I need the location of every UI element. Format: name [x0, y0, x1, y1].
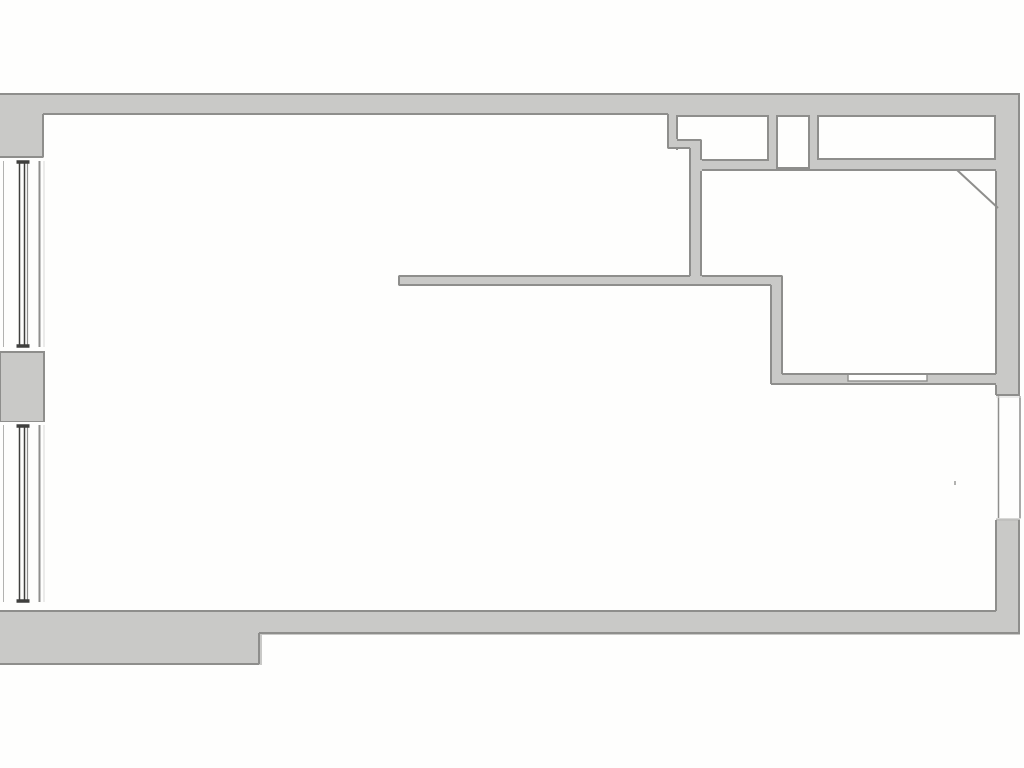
right-exterior-wall-upper [995, 93, 1020, 395]
closet-2-interior [818, 116, 995, 159]
pass-through-opening [848, 374, 927, 381]
speck-artifact [954, 481, 956, 485]
top-exterior-wall [0, 93, 1020, 115]
right-exterior-wall-lower [995, 520, 1020, 635]
bottom-exterior-wall [258, 611, 1020, 635]
floor-plan-drawing [0, 0, 1024, 768]
window-pier-wall [0, 352, 44, 422]
bottom-left-exterior-wall [0, 611, 262, 665]
top-left-corner-wall [0, 93, 44, 158]
right-window [996, 396, 1021, 519]
closet-divider-left [768, 113, 777, 171]
room-corner-patch [666, 150, 692, 162]
floor-plan-page [0, 0, 1024, 768]
closet-divider-right [809, 113, 818, 171]
left-window-1 [0, 158, 45, 351]
wall-niche-interior [777, 116, 809, 168]
left-window-2 [0, 422, 45, 608]
